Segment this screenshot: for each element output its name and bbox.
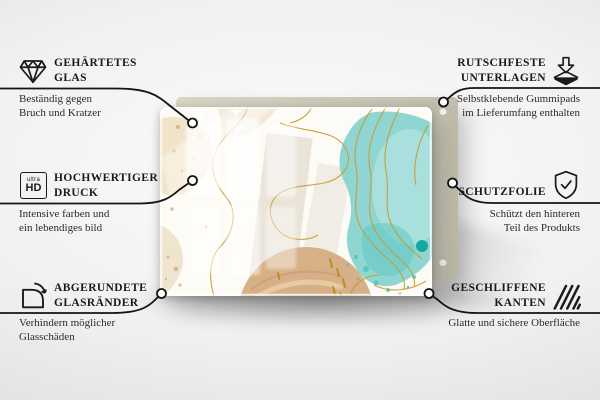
desc-line: Glasschäden: [19, 331, 115, 345]
non-slip-pads-icon: [551, 56, 581, 86]
title-line: ABGERUNDETE: [54, 281, 147, 296]
desc-line: Teil des Produkts: [490, 222, 580, 236]
ultra-hd-icon-text: HD: [26, 183, 42, 194]
feature-desc-print: Intensive farben und ein lebendiges bild: [19, 208, 109, 235]
feature-title-polished-edges: GESCHLIFFENE KANTEN: [451, 281, 546, 311]
feature-desc-non-slip: Selbstklebende Gummipads im Lieferumfang…: [457, 93, 580, 120]
rounded-corner-icon: [18, 281, 48, 311]
abstract-artwork: [160, 107, 432, 296]
feature-desc-rounded-edges: Verhindern möglicher Glasschäden: [19, 317, 115, 344]
desc-line: Intensive farben und: [19, 208, 109, 222]
feature-title-rounded-edges: ABGERUNDETE GLASRÄNDER: [54, 281, 147, 311]
desc-line: Beständig gegen: [19, 93, 101, 107]
rubber-pad: [439, 107, 447, 115]
title-line: KANTEN: [451, 296, 546, 311]
title-line: GEHÄRTETES: [54, 56, 137, 71]
feature-title-protective-film: SCHUTZFOLIE: [459, 185, 546, 200]
feature-title-non-slip: RUTSCHFESTE UNTERLAGEN: [457, 56, 546, 86]
feature-desc-tempered-glass: Beständig gegen Bruch und Kratzer: [19, 93, 101, 120]
feature-title-tempered-glass: GEHÄRTETES GLAS: [54, 56, 137, 86]
title-line: UNTERLAGEN: [457, 71, 546, 86]
rubber-pad: [439, 258, 447, 266]
title-line: DRUCK: [54, 186, 158, 201]
diamond-icon: [18, 56, 48, 86]
polished-edges-icon: [551, 281, 581, 311]
desc-line: Glatte und sichere Oberfläche: [448, 317, 580, 331]
desc-line: Verhindern möglicher: [19, 317, 115, 331]
feature-title-print: HOCHWERTIGER DRUCK: [54, 171, 158, 201]
title-line: SCHUTZFOLIE: [459, 185, 546, 200]
desc-line: im Lieferumfang enthalten: [457, 107, 580, 121]
title-line: GLASRÄNDER: [54, 296, 147, 311]
desc-line: ein lebendiges bild: [19, 222, 109, 236]
title-line: GESCHLIFFENE: [451, 281, 546, 296]
desc-line: Schützt den hinteren: [490, 208, 580, 222]
desc-line: Bruch und Kratzer: [19, 107, 101, 121]
title-line: GLAS: [54, 71, 137, 86]
desc-line: Selbstklebende Gummipads: [457, 93, 580, 107]
feature-desc-polished-edges: Glatte und sichere Oberfläche: [448, 317, 580, 331]
feature-desc-protective-film: Schützt den hinteren Teil des Produkts: [490, 208, 580, 235]
shield-check-icon: [551, 170, 581, 200]
title-line: RUTSCHFESTE: [457, 56, 546, 71]
title-line: HOCHWERTIGER: [54, 171, 158, 186]
ultra-hd-icon: ultra HD: [20, 172, 47, 199]
glass-panel-product-photo: [160, 107, 432, 296]
product-infographic: GEHÄRTETES GLAS Beständig gegen Bruch un…: [0, 0, 600, 400]
